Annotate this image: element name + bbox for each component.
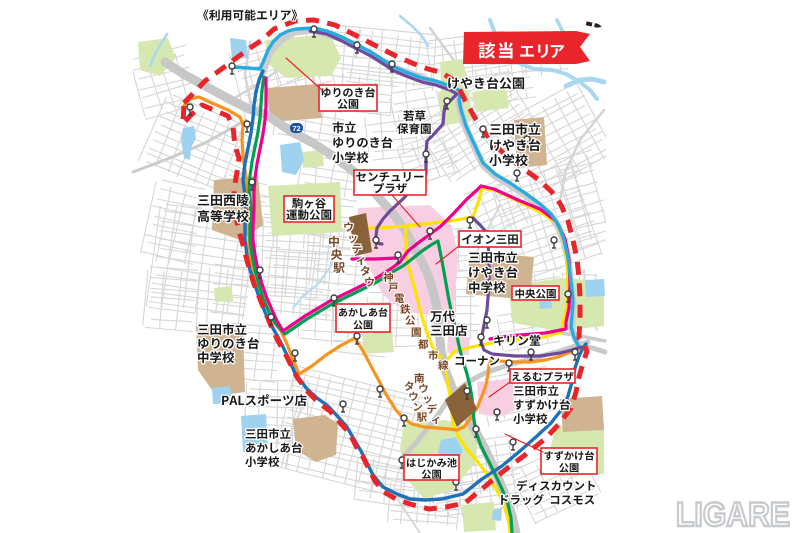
svg-text:72: 72 [292,124,300,133]
svg-text:LIGARE: LIGARE [676,496,790,533]
